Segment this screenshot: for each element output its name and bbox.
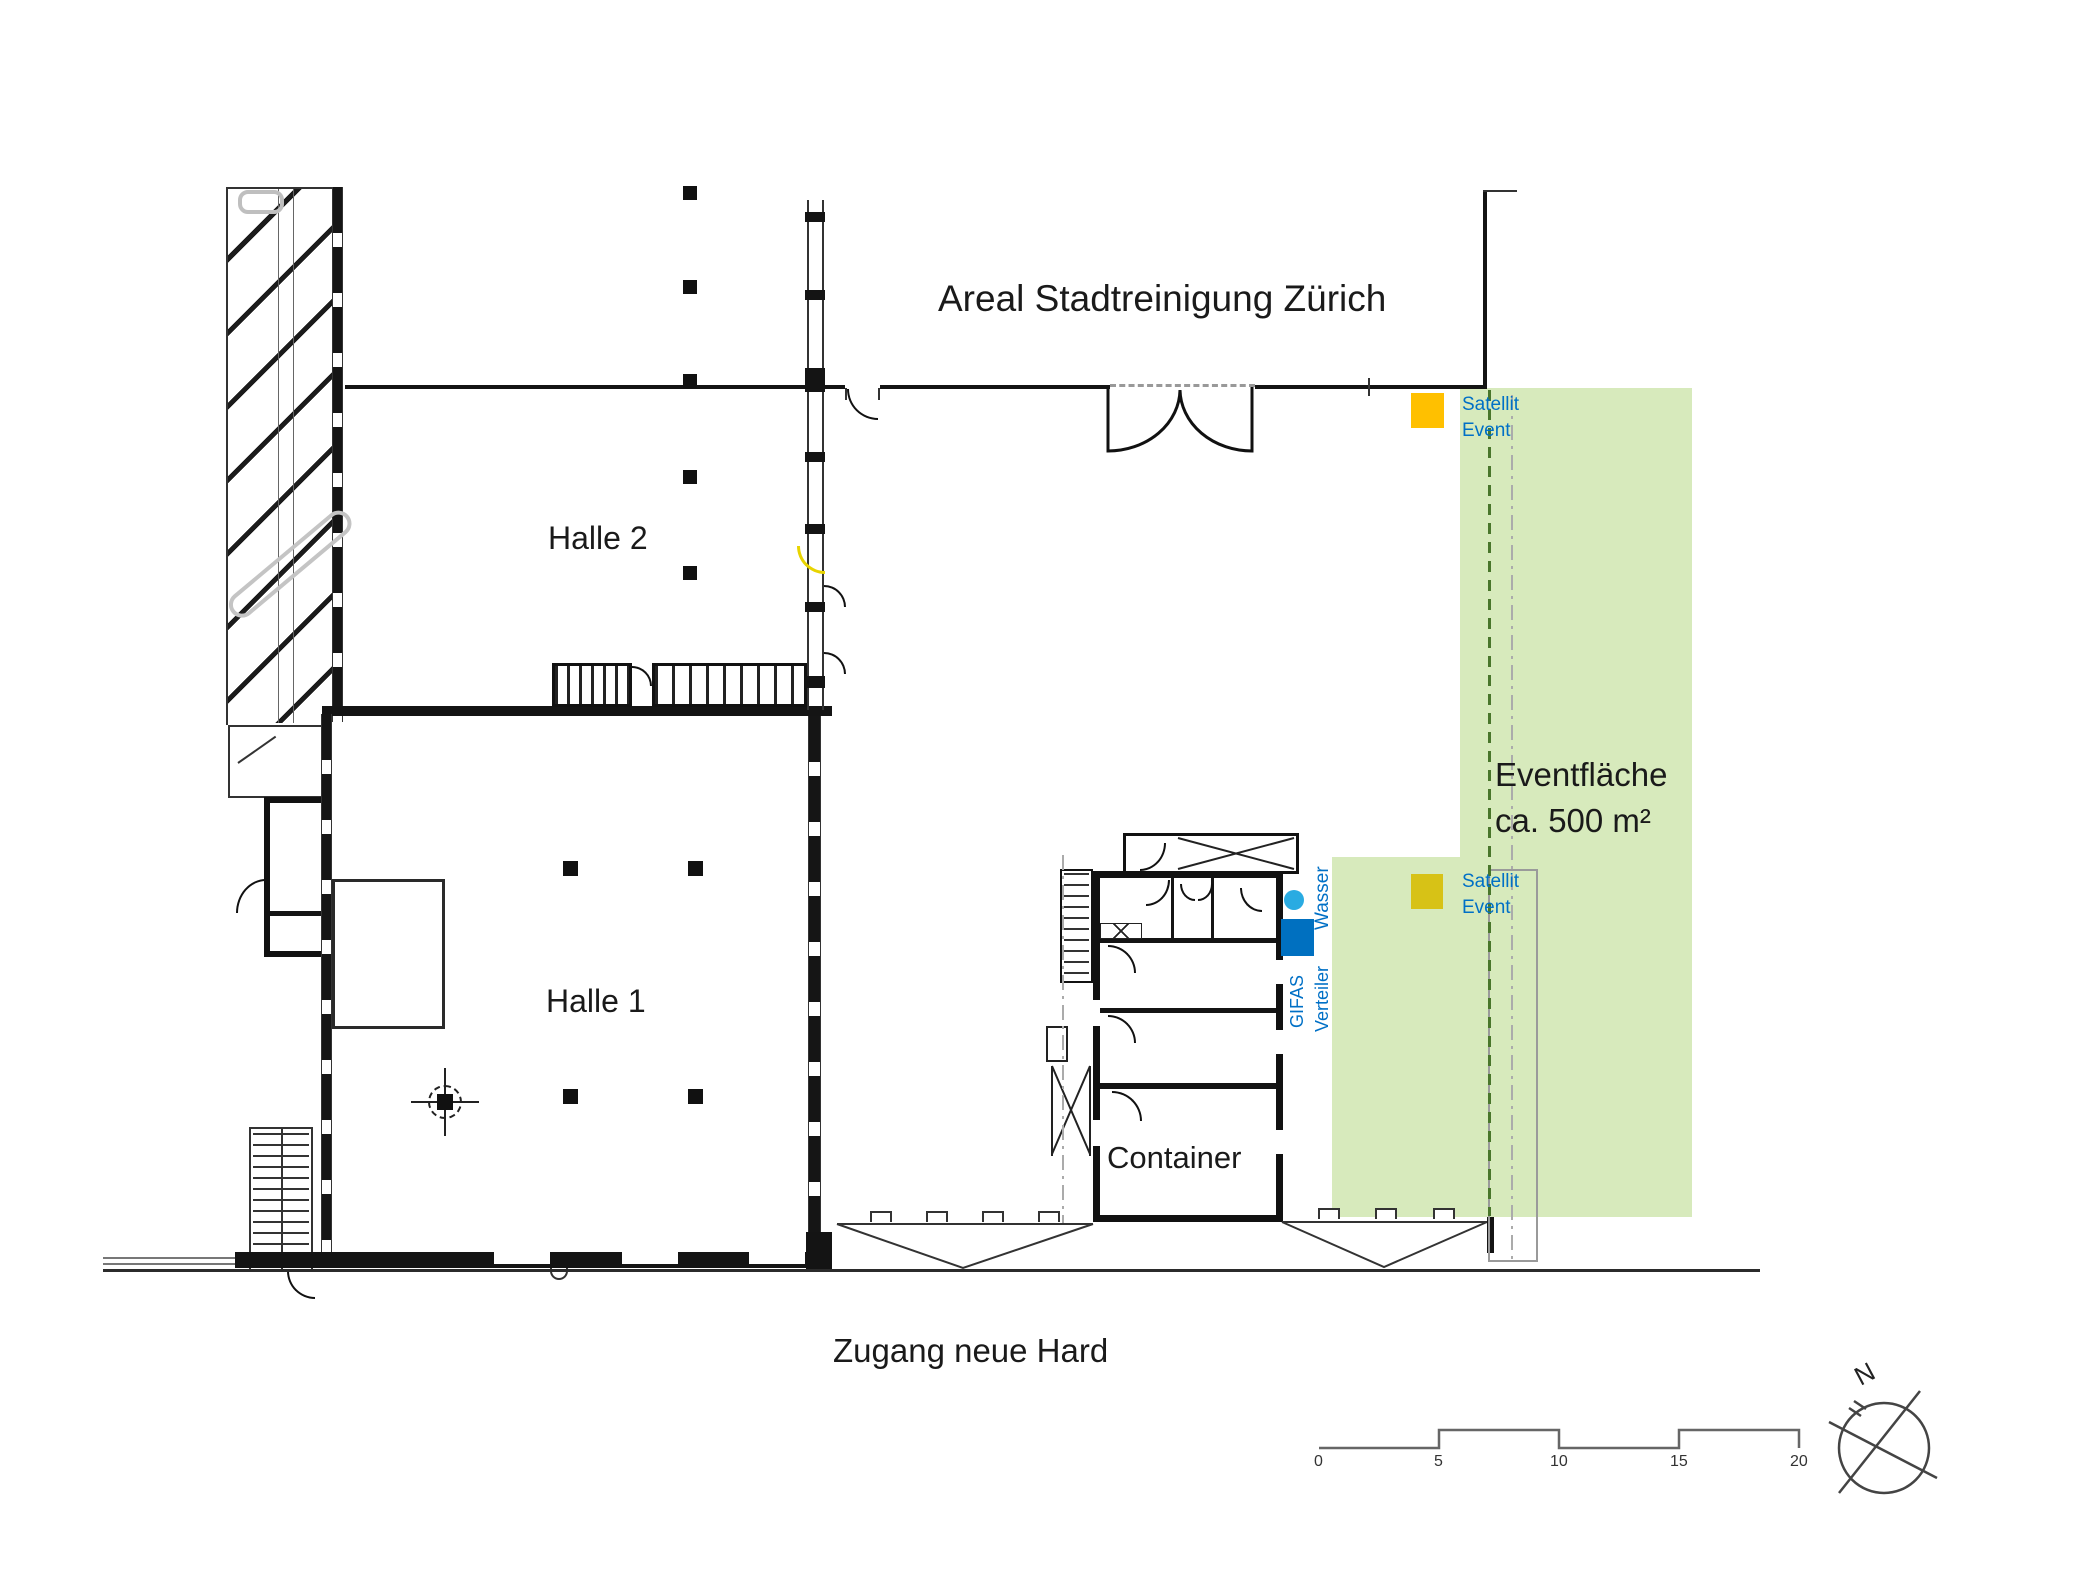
access-label: Zugang neue Hard: [833, 1332, 1108, 1370]
column: [688, 1089, 703, 1104]
container-partition: [1100, 1008, 1276, 1013]
satellit-event-marker-bottom: [1411, 874, 1443, 909]
double-door: [1104, 387, 1256, 461]
halle-divider-wall: [322, 706, 832, 716]
window-gap: [622, 1252, 678, 1264]
wall-pier: [805, 212, 825, 222]
scale-tick-10: 10: [1550, 1453, 1568, 1470]
window-gap: [1276, 1130, 1283, 1154]
halle2-label: Halle 2: [548, 520, 648, 557]
wall-pier: [805, 290, 825, 300]
satellit-event-label-top: Satellit Event: [1462, 392, 1519, 444]
dock-bumper: [1433, 1208, 1455, 1219]
door-swing-arc: [847, 389, 878, 420]
yard-north-wall: [1255, 385, 1485, 389]
annex-partition: [270, 911, 324, 916]
strip-rail-line: [293, 189, 294, 723]
equipment-outline: [238, 190, 284, 214]
staircase: [249, 1127, 313, 1271]
event-area-label: Eventfläche ca. 500 m²: [1495, 752, 1667, 844]
door-swing-arc: [824, 652, 846, 674]
dock-bumper: [1318, 1208, 1340, 1219]
ramp-room: [228, 725, 328, 798]
gifas-label: GIFAS: [1284, 948, 1310, 1028]
axis-line: [1062, 855, 1064, 1225]
dock-ramp-hatched: [552, 663, 632, 707]
north-arrow-icon: N: [1815, 1358, 1955, 1498]
door-swing-arc: [632, 666, 652, 686]
wall-pier: [805, 676, 825, 688]
event-area-extension: [1332, 857, 1460, 1217]
yard-north-wall: [880, 385, 1110, 389]
dock-bumper: [926, 1211, 948, 1222]
wall-tick: [1483, 190, 1517, 192]
column: [683, 470, 697, 484]
window-gap: [1093, 1120, 1100, 1146]
scale-tick-0: 0: [1314, 1453, 1323, 1470]
door-jamb: [878, 388, 880, 400]
north-label: N: [1849, 1356, 1880, 1391]
door-swing-arc: [824, 585, 846, 607]
column: [683, 374, 697, 388]
window-gap: [749, 1252, 805, 1264]
survey-column-crosshair: [411, 1068, 479, 1136]
yard-north-wall: [345, 385, 845, 389]
column: [688, 861, 703, 876]
small-box: [1046, 1026, 1068, 1062]
scale-tick-20: 20: [1790, 1453, 1808, 1470]
stair-brace: [1048, 1066, 1094, 1156]
window-gap: [494, 1252, 550, 1264]
container-partition-v: [1171, 878, 1174, 938]
satellit-event-marker-top: [1411, 393, 1444, 428]
event-area-label-line2: ca. 500 m²: [1495, 798, 1667, 844]
curb-line: [103, 1257, 253, 1259]
satellit-line1: Satellit: [1462, 869, 1519, 895]
window-gap: [1093, 1000, 1100, 1026]
window-gap: [1276, 1030, 1283, 1054]
dock-apron-left: [835, 1220, 1095, 1272]
container-partition: [1100, 1083, 1276, 1089]
northeast-wall-riser: [1483, 190, 1487, 389]
column: [563, 1089, 578, 1104]
curb-line: [103, 1263, 253, 1265]
door-swing-arc: [287, 1271, 315, 1299]
halle1-east-wall: [808, 716, 821, 1252]
wasser-label: Wasser: [1310, 835, 1336, 930]
column: [683, 566, 697, 580]
wall-corner: [806, 1232, 832, 1270]
wall-pier: [805, 602, 825, 612]
canopy-braces: [1178, 836, 1296, 871]
dock-bumper: [1375, 1208, 1397, 1219]
door-swing-arc-yellow: [797, 546, 825, 574]
satellit-event-label-bottom: Satellit Event: [1462, 869, 1519, 921]
satellit-line2: Event: [1462, 895, 1519, 921]
column: [683, 280, 697, 294]
dock-bumper: [870, 1211, 892, 1222]
wall-pier: [805, 524, 825, 534]
scale-bar: 0 5 10 15 20: [1308, 1410, 1818, 1470]
verteiler-label: Verteiler: [1309, 932, 1335, 1032]
column: [563, 861, 578, 876]
event-area-label-line1: Eventfläche: [1495, 752, 1667, 798]
satellit-line2: Event: [1462, 418, 1519, 444]
column: [683, 186, 697, 200]
halle1-interior-room: [332, 879, 445, 1029]
hatched-shaft: [1100, 923, 1142, 939]
halle1-west-wall: [321, 714, 332, 1265]
strip-rail-line: [278, 189, 279, 723]
halle1-label: Halle 1: [546, 983, 646, 1020]
crane-track-outline: [1488, 869, 1538, 1262]
wasser-marker: [1284, 890, 1304, 910]
dock-bumper: [982, 1211, 1004, 1222]
window-gap: [1276, 960, 1283, 984]
door-swing-arc: [236, 879, 266, 913]
ground-line: [103, 1269, 1760, 1272]
strip-east-wall: [332, 187, 343, 722]
site-plan: Areal Stadtreinigung Zürich Halle 2 Hall…: [0, 0, 2100, 1575]
dock-ramp-hatched: [652, 663, 807, 707]
dock-apron-right: [1280, 1218, 1489, 1270]
exterior-stair: [1060, 869, 1093, 983]
wall-pier: [805, 452, 825, 462]
satellit-line1: Satellit: [1462, 392, 1519, 418]
dock-bumper: [1038, 1211, 1060, 1222]
scale-tick-5: 5: [1434, 1453, 1443, 1470]
ramp-hatch: [228, 189, 341, 723]
container-label: Container: [1107, 1140, 1241, 1176]
plan-title: Areal Stadtreinigung Zürich: [938, 278, 1386, 320]
scale-tick-15: 15: [1670, 1453, 1688, 1470]
wall-tick: [1368, 378, 1370, 396]
boundary-dashed-green: [1488, 390, 1491, 1216]
wall-pier: [805, 368, 825, 392]
stair-divider: [281, 1129, 283, 1269]
